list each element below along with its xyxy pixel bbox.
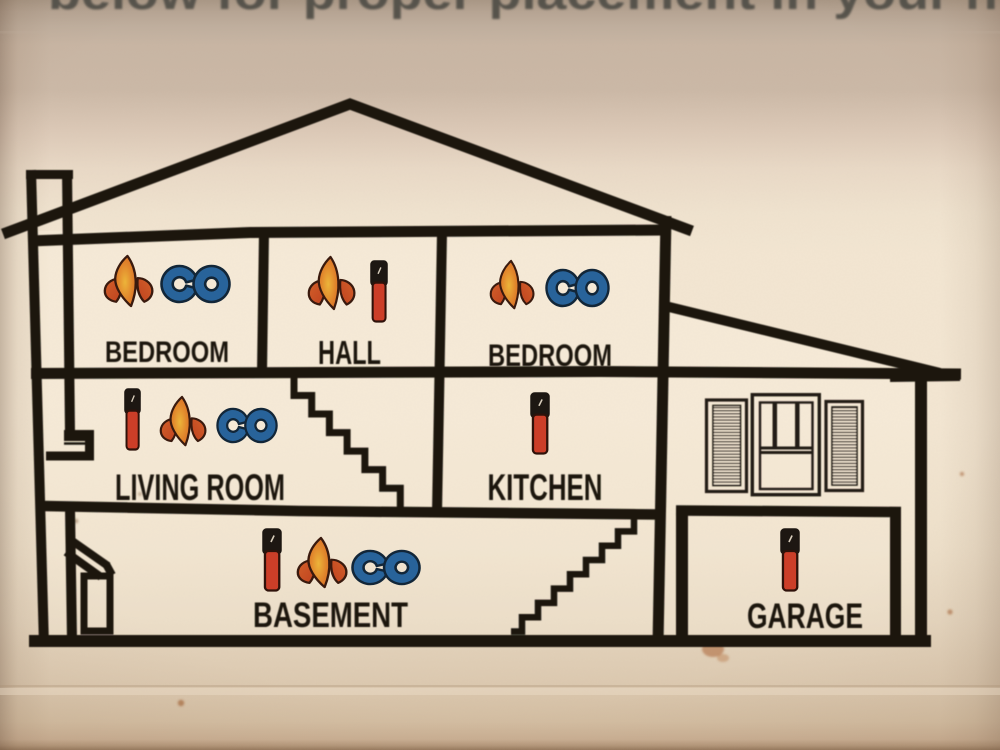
svg-text:LIVING ROOM: LIVING ROOM <box>115 467 285 508</box>
svg-text:GARAGE: GARAGE <box>747 596 863 636</box>
svg-text:KITCHEN: KITCHEN <box>488 467 603 508</box>
svg-text:BEDROOM: BEDROOM <box>105 336 229 369</box>
svg-text:HALL: HALL <box>318 334 381 371</box>
svg-text:BASEMENT: BASEMENT <box>253 595 408 635</box>
svg-text:below for proper placement in: below for proper placement in your h <box>48 0 998 20</box>
svg-text:BEDROOM: BEDROOM <box>488 337 612 373</box>
